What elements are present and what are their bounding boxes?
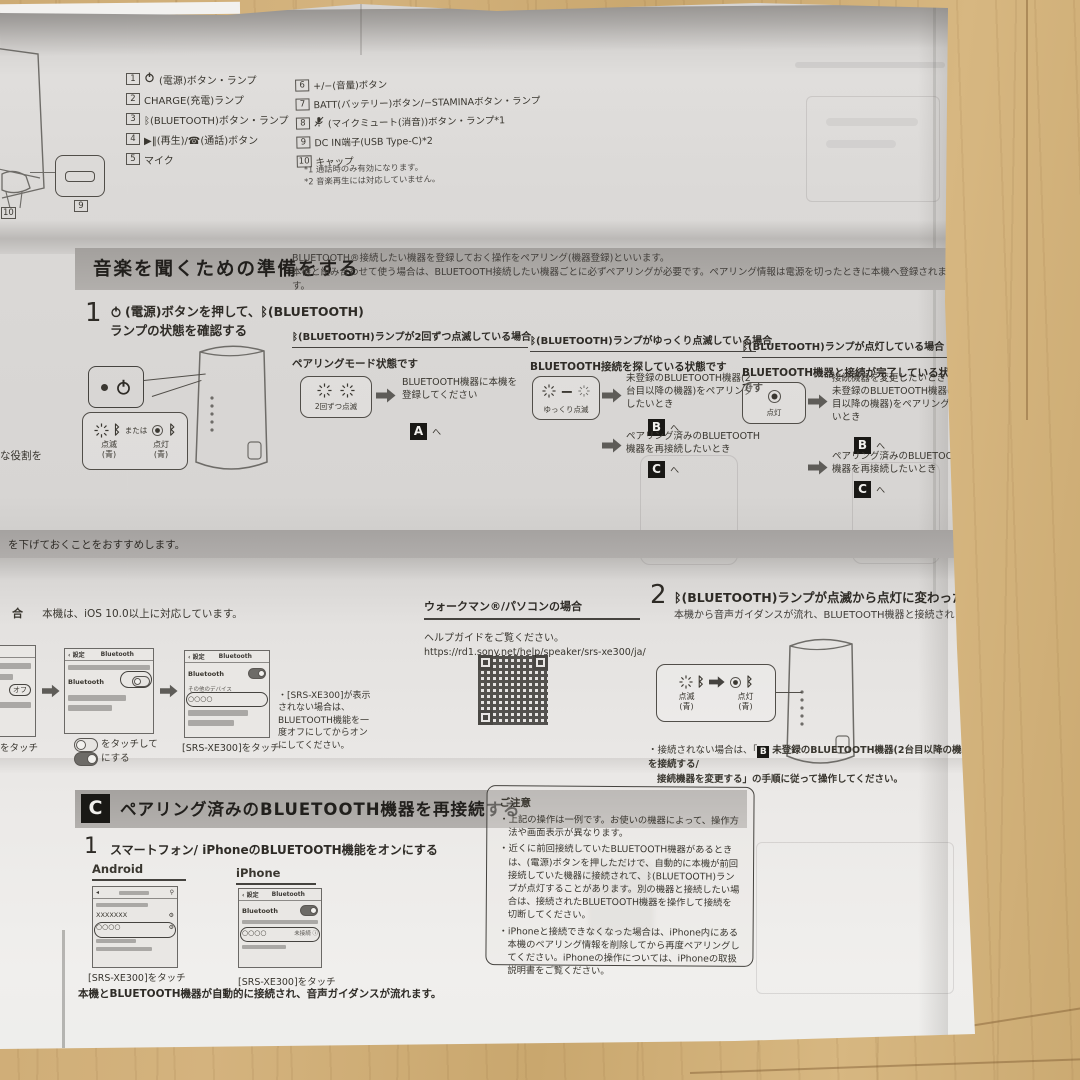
badge-c-large: C <box>81 794 110 823</box>
list-item: 9 DC IN端子(USB Type-C)*2 <box>296 130 546 149</box>
step1-number: 1 <box>85 298 102 328</box>
manual-paper: 9 10 1 (電源)ボタン・ランプ 2 CHARGE(充電)ランプ 3 ᛒ(B… <box>0 0 1080 1080</box>
list-item: 4 ▶‖(再生)/☎(通話)ボタン <box>126 132 316 147</box>
header-rule <box>236 883 316 885</box>
show-through <box>826 118 918 126</box>
step2-lamp-box: ᛒ ᛒ 点滅(青) 点灯(青) <box>656 664 776 722</box>
arrow-icon <box>709 676 725 688</box>
case-a-lamp: 2回ずつ点滅 <box>300 376 372 418</box>
phone-screenshot-device: ‹ 設定 Bluetooth Bluetooth その他のデバイス ○○○○ <box>184 650 270 738</box>
bt-row-label: Bluetooth <box>188 670 224 678</box>
lamp-status-callout: ᛒ または ᛒ 点滅(青) 点灯(青) <box>82 412 188 470</box>
walkman-section: ウォークマン®/パソコンの場合 ヘルプガイドをご覧ください。 https://r… <box>424 598 646 658</box>
section-c-title: ペアリング済みのBLUETOOTH機器を再接続する <box>120 796 521 820</box>
ios-head: 合 <box>12 607 23 620</box>
bluetooth-icon: ᛒ <box>168 423 176 438</box>
note-band: を下げておくことをおすすめします。 <box>0 530 965 558</box>
screen-title: Bluetooth <box>101 651 134 658</box>
case-a-header: ᛒ(BLUETOOTH)ランプが2回ずつ点滅している場合 <box>292 328 528 348</box>
part-label: (電源)ボタン・ランプ <box>159 72 257 87</box>
toggle-off-icon <box>74 738 98 752</box>
usb-c-port <box>65 171 95 182</box>
show-through <box>795 62 945 68</box>
part-label: DC IN端子(USB Type-C)*2 <box>314 133 433 149</box>
toggle-on <box>248 668 266 679</box>
lit-label: 点灯(青) <box>738 692 754 711</box>
band-note: を下げておくことをおすすめします。 <box>8 537 185 552</box>
parts-list-right: 6 +/−(音量)ボタン 7 BATT(バッテリー)ボタン/−STAMINAボタ… <box>295 73 547 173</box>
list-item: 3 ᛒ(BLUETOOTH)ボタン・ランプ <box>126 112 316 127</box>
highlight-circle <box>240 927 320 942</box>
badge-c: C <box>648 461 665 478</box>
toggle-on <box>300 905 318 916</box>
show-through <box>756 842 954 994</box>
lit-label: 点灯(青) <box>153 440 169 459</box>
callout-label-9: 9 <box>74 200 88 212</box>
phone-screenshot-partial: オフ <box>0 645 36 737</box>
toggle-caption: をタッチして にする <box>74 738 158 767</box>
step2-sub: 本機から音声ガイダンスが流れ、BLUETOOTH機器と接続されます。 <box>674 606 984 621</box>
badge-c: C <box>854 481 871 498</box>
blink-icon <box>317 383 332 398</box>
iphone-header: iPhone <box>236 866 280 880</box>
bluetooth-icon: ᛒ <box>746 675 754 690</box>
show-through <box>806 96 940 202</box>
case-b: ᛒ(BLUETOOTH)ランプがゆっくり点滅している場合 BLUETOOTH接続… <box>530 332 758 374</box>
arrow-icon <box>42 684 60 698</box>
blink-label: 点滅(青) <box>101 440 117 459</box>
screen-title: Bluetooth <box>219 653 252 660</box>
plank-seam <box>1026 0 1028 420</box>
device-note: ・[SRS-XE300]が表示されない場合は、BLUETOOTH機能を一度オフに… <box>278 690 372 752</box>
android-caption: [SRS-XE300]をタッチ <box>88 970 186 984</box>
android-header: Android <box>92 862 143 876</box>
section-intro: BLUETOOTH®接続したい機器を登録しておく操作をペアリング(機器登録)とい… <box>292 252 952 293</box>
paired-device: XXXXXXX <box>96 911 127 919</box>
qr-code <box>478 655 548 725</box>
arrow-icon <box>160 684 178 698</box>
intro-line-2: 本機と組み合わせて使う場合は、BLUETOOTH接続したい機器ごとに必ずペアリン… <box>292 266 952 294</box>
part-label: マイク <box>144 152 174 167</box>
case-b-header: ᛒ(BLUETOOTH)ランプがゆっくり点滅している場合 <box>530 332 756 352</box>
mic-mute-icon <box>314 116 324 127</box>
lit-icon <box>729 676 742 689</box>
step2-number: 2 <box>650 580 667 610</box>
list-item: 2 CHARGE(充電)ランプ <box>126 92 316 107</box>
arrow-icon <box>808 460 828 475</box>
arrow-icon <box>376 388 396 403</box>
power-icon <box>115 379 132 396</box>
ios-note: 本機は、iOS 10.0以上に対応しています。 <box>42 608 243 620</box>
list-item: 7 BATT(バッテリー)ボタン/−STAMINAボタン・ランプ <box>295 92 545 111</box>
list-item: 5 マイク <box>126 152 316 167</box>
part-label: CHARGE(充電)ランプ <box>144 92 244 107</box>
walkman-header: ウォークマン®/パソコンの場合 <box>424 598 646 614</box>
toggle-on-icon <box>74 752 98 766</box>
blink-label: 点滅(青) <box>679 692 695 711</box>
header-rule <box>424 618 640 620</box>
stepc1-title: スマートフォン/ iPhoneのBLUETOOTH機能をオンにする <box>110 841 438 858</box>
power-button-callout <box>88 366 144 408</box>
back-label: ‹ 設定 <box>242 890 259 899</box>
highlight-circle <box>186 692 268 707</box>
case-b-action1: 未登録のBLUETOOTH機器(2台目以降の機器)をペアリングしたいとき <box>626 372 758 411</box>
fold-shadow <box>0 556 1000 580</box>
case-c-lamp: 点灯 <box>742 382 806 424</box>
arrow-icon <box>808 394 828 409</box>
device-caption: [SRS-XE300]をタッチ <box>182 740 280 754</box>
notice-bullet: ・iPhoneと接続できなくなった場合は、iPhone内にある本機のペアリング情… <box>498 925 740 979</box>
bt-row-label: Bluetooth <box>68 678 104 686</box>
notice-box: ご注意 ・上記の操作は一例です。お使いの機器によって、操作方法や画面表示が異なり… <box>485 785 754 967</box>
iphone-screenshot: ‹ 設定 Bluetooth Bluetooth ○○○○ 未接続 ⓘ <box>238 888 322 968</box>
crease-vertical <box>360 0 362 55</box>
case-b-target2: C へ <box>648 458 679 478</box>
notice-title: ご注意 <box>499 795 741 812</box>
footnote-2: *2 音楽再生には対応していません。 <box>304 173 440 188</box>
highlight-circle <box>94 922 176 938</box>
bluetooth-icon: ᛒ <box>113 423 121 438</box>
partial-text: な役割を <box>0 448 42 463</box>
part-label: ▶‖(再生)/☎(通話)ボタン <box>144 132 258 147</box>
back-label: ‹ 設定 <box>188 652 205 661</box>
usb-port-callout <box>55 155 105 197</box>
blink-icon <box>340 383 355 398</box>
power-icon <box>110 306 122 318</box>
blink-dim-icon <box>578 385 590 397</box>
notice-bullet: ・近くに前回接続していたBLUETOOTH機器があるときは、(電源)ボタンを押し… <box>499 843 742 924</box>
blink-icon <box>679 675 693 689</box>
show-through <box>826 140 896 148</box>
partial-caption: をタッチ <box>0 740 38 754</box>
back-label: ‹ 設定 <box>68 650 85 659</box>
case-c-header: ᛒ(BLUETOOTH)ランプが点灯している場合 <box>742 338 954 358</box>
part-label: +/−(音量)ボタン <box>313 77 387 93</box>
lit-icon <box>767 389 782 404</box>
callout-line <box>30 172 55 173</box>
case-a-action: BLUETOOTH機器に本機を登録してください <box>402 376 520 402</box>
lamp-dot <box>101 384 108 391</box>
arrow-icon <box>602 438 622 453</box>
android-screenshot: ◂⚲ XXXXXXX ⚙ ○○○○ ⚙ <box>92 886 178 968</box>
bt-row-label: Bluetooth <box>242 907 278 915</box>
part-label: ᛒ(BLUETOOTH)ボタン・ランプ <box>144 112 289 127</box>
callout-line <box>776 692 802 693</box>
case-a-lamp-label: 2回ずつ点滅 <box>315 401 357 412</box>
part-label: BATT(バッテリー)ボタン/−STAMINAボタン・ランプ <box>313 92 540 111</box>
crease-vertical <box>62 930 65 1048</box>
case-b-lamp: − ゆっくり点滅 <box>532 376 600 420</box>
off-pill: オフ <box>9 684 31 696</box>
callout-label-10: 10 <box>1 207 16 219</box>
case-c-target2: C へ <box>854 478 885 498</box>
power-icon <box>144 72 155 83</box>
list-item: 1 (電源)ボタン・ランプ <box>126 72 316 87</box>
case-b-action2: ペアリング済みのBLUETOOTH機器を再接続したいとき <box>626 430 766 456</box>
footnotes: *1 通話時のみ有効になります。 *2 音楽再生には対応していません。 <box>304 161 441 188</box>
case-a-target: A へ <box>410 420 441 440</box>
case-a-state: ペアリングモード状態です <box>292 356 530 371</box>
header-rule <box>92 879 186 881</box>
part-label: (マイクミュート(消音))ボタン・ランプ*1 <box>328 112 505 130</box>
parts-list-left: 1 (電源)ボタン・ランプ 2 CHARGE(充電)ランプ 3 ᛒ(BLUETO… <box>126 72 316 172</box>
step2-note: ・接続されない場合は、「B 未登録のBLUETOOTH機器(2台目以降の機器)を… <box>648 744 984 787</box>
notice-bullet: ・上記の操作は一例です。お使いの機器によって、操作方法や画面表示が異なります。 <box>499 813 741 841</box>
result-text: 本機とBLUETOOTH機器が自動的に接続され、音声ガイダンスが流れます。 <box>78 986 441 1001</box>
manual-photo: 9 10 1 (電源)ボタン・ランプ 2 CHARGE(充電)ランプ 3 ᛒ(B… <box>0 0 1080 1080</box>
screen-title: Bluetooth <box>272 891 305 898</box>
badge-b: B <box>757 746 769 758</box>
highlight-circle <box>120 671 152 688</box>
arrow-icon <box>602 388 622 403</box>
stepc1-number: 1 <box>84 834 98 859</box>
list-item: 8 (マイクミュート(消音))ボタン・ランプ*1 <box>296 111 546 130</box>
case-c: ᛒ(BLUETOOTH)ランプが点灯している場合 BLUETOOTH機器と接続が… <box>742 338 968 395</box>
blink-icon <box>94 423 109 438</box>
case-a: ᛒ(BLUETOOTH)ランプが2回ずつ点滅している場合 ペアリングモード状態で… <box>292 328 530 371</box>
case-c-lamp-label: 点灯 <box>767 407 782 418</box>
or-label: または <box>125 425 148 436</box>
list-item: 6 +/−(音量)ボタン <box>295 73 545 92</box>
bluetooth-icon: ᛒ <box>697 675 705 690</box>
intro-line-1: BLUETOOTH®接続したい機器を登録しておく操作をペアリング(機器登録)とい… <box>292 252 952 266</box>
case-b-lamp-label: ゆっくり点滅 <box>544 404 589 415</box>
blink-icon <box>542 384 556 398</box>
speaker-drawing <box>178 336 284 484</box>
badge-a: A <box>410 423 427 440</box>
ios-note-row: 合 本機は、iOS 10.0以上に対応しています。 <box>12 602 243 621</box>
help-text: ヘルプガイドをご覧ください。 <box>424 629 646 644</box>
lit-icon <box>151 424 164 437</box>
phone-screenshot-toggle-off: ‹ 設定 Bluetooth Bluetooth <box>64 648 154 734</box>
